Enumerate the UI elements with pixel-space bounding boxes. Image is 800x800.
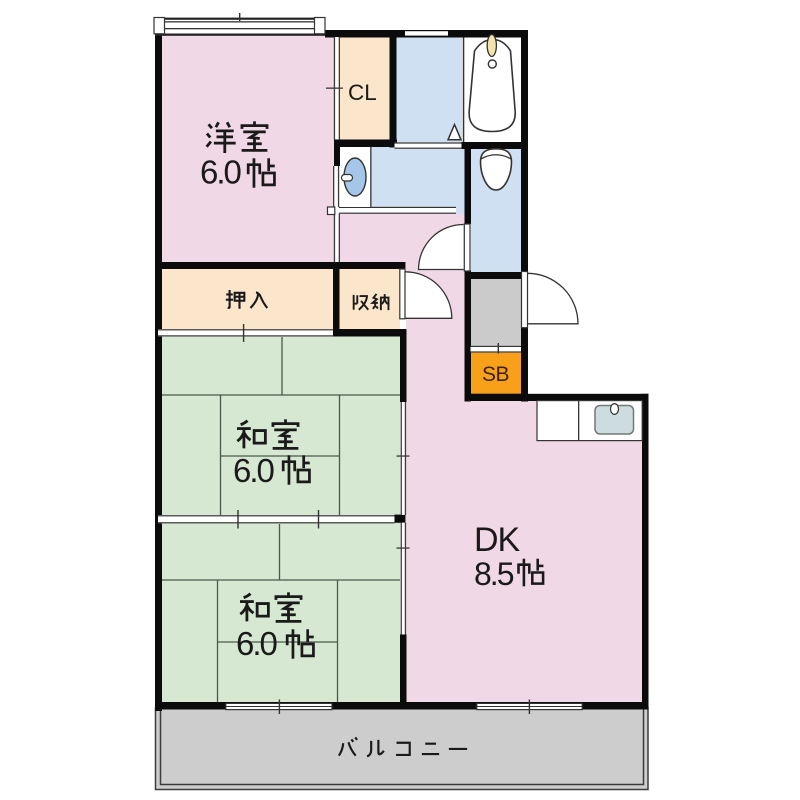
svg-text:6.0: 6.0 [236,625,278,662]
svg-text:CL: CL [348,80,377,105]
svg-text:6.0: 6.0 [200,154,242,191]
svg-text:8.5: 8.5 [474,556,514,592]
svg-text:6.0: 6.0 [233,452,275,489]
svg-text:DK: DK [474,521,521,559]
svg-text:SB: SB [482,363,509,386]
